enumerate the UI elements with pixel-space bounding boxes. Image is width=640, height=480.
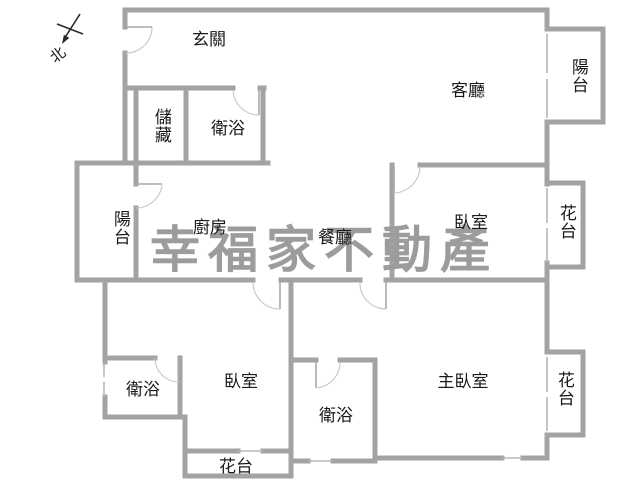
floorplan: 幸福家不動產 bbox=[0, 0, 640, 480]
room-label-foyer: 玄關 bbox=[192, 31, 226, 49]
room-label-bath-top: 衛浴 bbox=[211, 120, 245, 138]
room-label-living: 客廳 bbox=[451, 82, 485, 100]
room-label-bath-middle: 衛浴 bbox=[319, 407, 353, 425]
room-label-flower-bottom-right: 花台 bbox=[555, 371, 573, 407]
room-label-balcony-left: 陽台 bbox=[111, 210, 129, 246]
north-arrow-icon bbox=[57, 14, 83, 44]
door-arcs bbox=[125, 27, 420, 388]
room-label-kitchen: 廚房 bbox=[193, 219, 227, 237]
door-leaves bbox=[125, 27, 394, 388]
room-label-flower-bottom: 花台 bbox=[219, 458, 253, 476]
room-label-bath-left: 衛浴 bbox=[126, 381, 160, 399]
room-label-bedroom-right: 臥室 bbox=[454, 214, 488, 232]
room-label-storage: 儲藏 bbox=[152, 108, 170, 144]
room-label-flower-top-right: 花台 bbox=[557, 204, 575, 240]
room-label-master-bedroom: 主臥室 bbox=[438, 373, 489, 391]
room-label-balcony-top-right: 陽台 bbox=[569, 58, 587, 94]
room-label-bedroom-bottom: 臥室 bbox=[224, 373, 258, 391]
room-label-dining: 餐廳 bbox=[318, 229, 352, 247]
